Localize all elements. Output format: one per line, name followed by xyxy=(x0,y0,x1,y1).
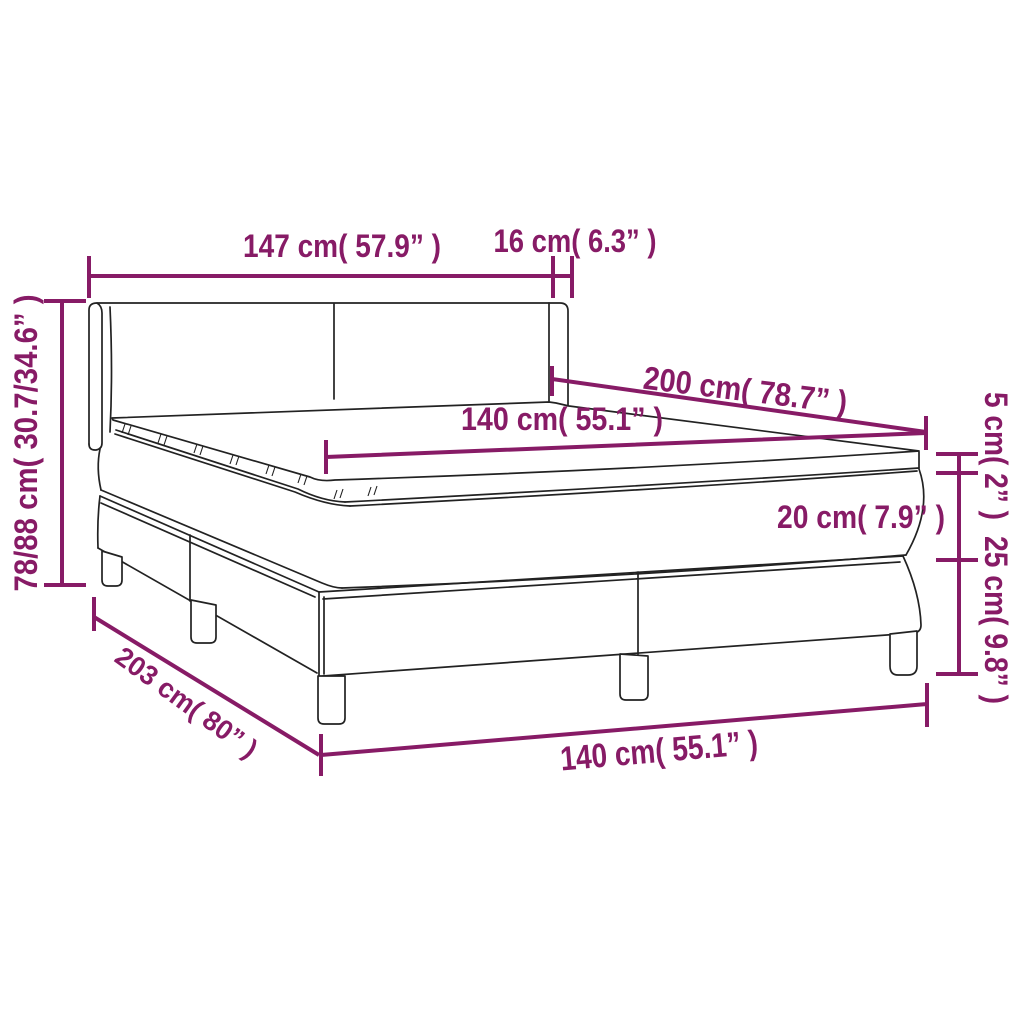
svg-text:78/88 cm( 30.7/34.6” ): 78/88 cm( 30.7/34.6” ) xyxy=(8,295,44,592)
svg-text:5 cm( 2” ): 5 cm( 2” ) xyxy=(978,392,1014,520)
svg-text:20 cm( 7.9” ): 20 cm( 7.9” ) xyxy=(777,499,945,535)
svg-text:140 cm( 55.1” ): 140 cm( 55.1” ) xyxy=(461,401,663,437)
svg-text:147 cm( 57.9” ): 147 cm( 57.9” ) xyxy=(243,228,441,264)
svg-text:25 cm( 9.8” ): 25 cm( 9.8” ) xyxy=(978,536,1014,704)
svg-text:16 cm( 6.3” ): 16 cm( 6.3” ) xyxy=(494,223,657,259)
